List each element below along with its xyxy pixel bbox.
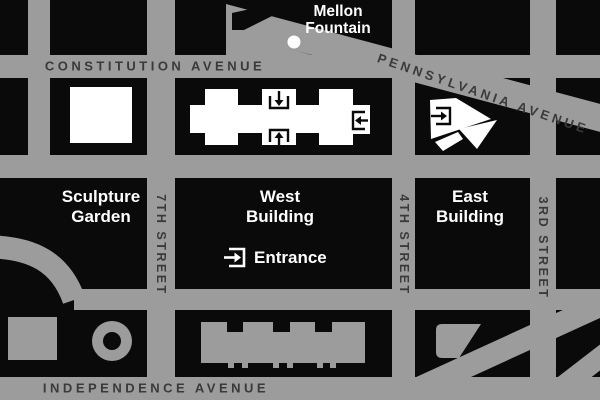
notched-federal-building [201, 322, 365, 368]
west-building-label: West Building [246, 187, 314, 227]
east-building-label: East Building [436, 187, 504, 227]
madison-drive-road [0, 155, 600, 178]
independence-avenue-label: INDEPENDENCE AVENUE [43, 381, 269, 396]
mellon-fountain-label: Mellon Fountain [305, 3, 370, 37]
west-building-line2: Building [246, 207, 314, 227]
sculpture-garden-line2: Garden [62, 207, 140, 227]
east-building-line2: Building [436, 207, 504, 227]
mellon-fountain-dot [288, 36, 301, 49]
nga-area-map: CONSTITUTION AVENUE PENNSYLVANIA AVENUE … [0, 0, 600, 400]
constitution-avenue-label: CONSTITUTION AVENUE [45, 59, 265, 74]
hirshhorn-ring [92, 321, 132, 361]
entrance-label: Entrance [254, 248, 327, 268]
south-square-building [8, 317, 57, 360]
fourth-street-label: 4TH STREET [397, 194, 411, 295]
mellon-fountain-line2: Fountain [305, 20, 370, 37]
third-street-label: 3RD STREET [536, 197, 550, 300]
seventh-street-label: 7TH STREET [154, 194, 168, 295]
sculpture-garden-line1: Sculpture [62, 187, 140, 207]
sculpture-garden-label: Sculpture Garden [62, 187, 140, 227]
ninth-street-road [28, 0, 50, 178]
sculpture-garden-fountain [70, 87, 132, 143]
west-building-line1: West [246, 187, 314, 207]
east-building-line1: East [436, 187, 504, 207]
mellon-fountain-line1: Mellon [305, 3, 370, 20]
